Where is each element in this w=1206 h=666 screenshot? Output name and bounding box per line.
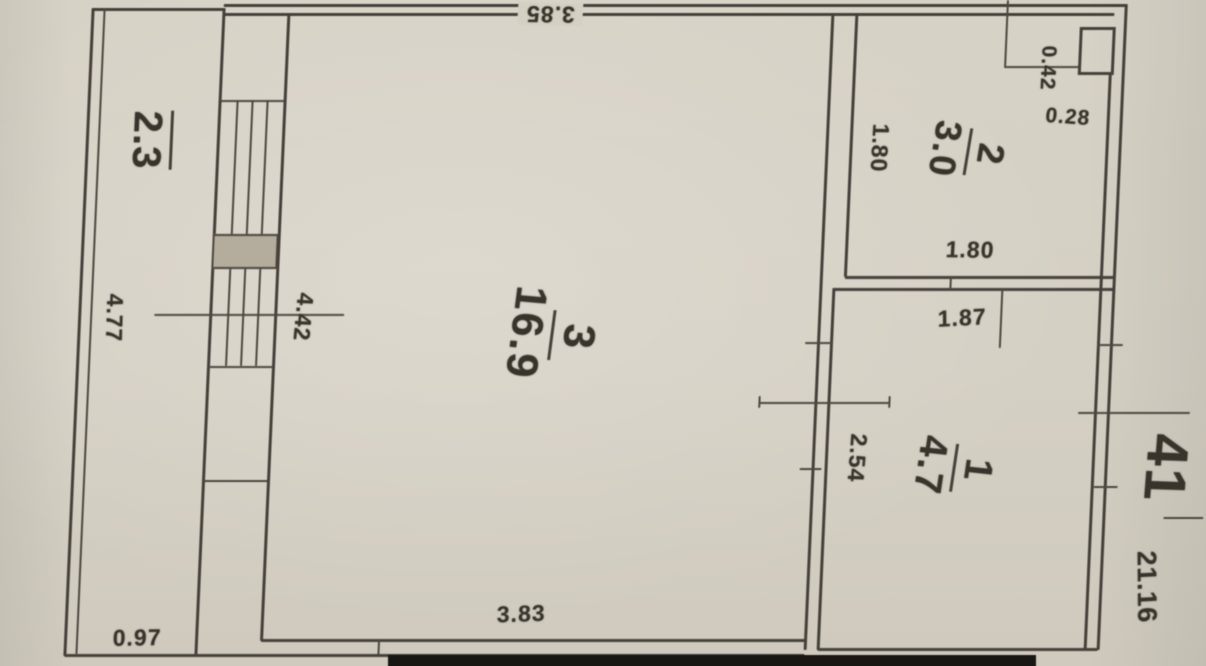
room3-area: 16.9 xyxy=(498,284,557,381)
dim-shaft-width: 0.28 xyxy=(1044,105,1091,129)
room3-number: 3 xyxy=(547,310,604,365)
vent-shaft xyxy=(1078,27,1116,75)
room1-number: 1 xyxy=(949,444,1002,496)
window-pane-line xyxy=(225,100,239,366)
window-bottom-edge xyxy=(208,366,273,368)
entry-tick xyxy=(1094,486,1118,488)
dim-room2-depth: 1.80 xyxy=(867,123,893,172)
balcony-area-label: 2.3 xyxy=(126,111,175,170)
window-pier-block xyxy=(211,234,279,269)
wall-room1-bottom xyxy=(818,648,1098,651)
wall-top-inner xyxy=(223,13,1114,16)
room2-label: 2 3.0 xyxy=(922,118,1014,185)
dim-room1-depth: 2.54 xyxy=(844,433,871,483)
dim-tick xyxy=(888,396,891,408)
dim-balcony-length: 4.77 xyxy=(102,293,126,342)
wall-top-outer xyxy=(224,4,1126,7)
photo-edge-shadow xyxy=(388,655,1036,666)
balcony-door-edge xyxy=(203,480,268,482)
wall-right-outer xyxy=(1097,4,1128,650)
window-pane-line xyxy=(255,100,269,366)
entry-tick xyxy=(1097,344,1123,346)
entry-dim-line xyxy=(1078,412,1190,414)
total-area: 21.16 xyxy=(1133,550,1161,624)
wall-joint-tick xyxy=(799,468,821,470)
wall-joint-tick xyxy=(805,342,833,344)
dim-shaft-depth: 0.42 xyxy=(1037,46,1060,91)
dim-tick xyxy=(758,396,761,408)
balcony-area-value: 2.3 xyxy=(126,111,175,170)
dim-room3-width-bottom: 3.83 xyxy=(497,602,546,627)
room3-label: 3 16.9 xyxy=(498,284,607,386)
wall-room1-top xyxy=(833,288,1113,291)
wall-room3-bottom-inner xyxy=(261,639,805,642)
floor-plan-drawing: 2.3 4.77 0.97 4.42 3 16.9 3.85 3.83 2 3.… xyxy=(0,0,1206,666)
apartment-number: 41 xyxy=(1134,433,1197,503)
wall-room2-right xyxy=(1084,74,1112,650)
window-pane-line xyxy=(240,100,254,366)
floor-plan-photo: 2.3 4.77 0.97 4.42 3 16.9 3.85 3.83 2 3.… xyxy=(0,0,1206,666)
dim-room2-width: 1.80 xyxy=(945,238,995,262)
dim-line-room1-depth xyxy=(758,402,890,404)
dim-balcony-width: 0.97 xyxy=(112,626,161,650)
wall-balcony-right xyxy=(194,8,225,656)
dim-room3-width-top: 3.85 xyxy=(517,2,583,26)
margin-tick xyxy=(1163,517,1203,519)
niche-wall xyxy=(1004,0,1009,67)
dim-room3-depth: 4.42 xyxy=(289,292,317,342)
dim-room1-width: 1.87 xyxy=(938,305,987,331)
wall-room2-bottom xyxy=(845,276,1114,279)
room1-label: 1 4.7 xyxy=(907,433,1003,502)
room2-number: 2 xyxy=(963,129,1014,181)
wall-room3-left xyxy=(260,13,290,641)
room1-area: 4.7 xyxy=(907,433,957,497)
wall-balcony-top xyxy=(93,8,224,11)
door-leaf xyxy=(999,288,1004,348)
dim-tick xyxy=(377,639,380,655)
wall-room2-left xyxy=(844,13,859,277)
